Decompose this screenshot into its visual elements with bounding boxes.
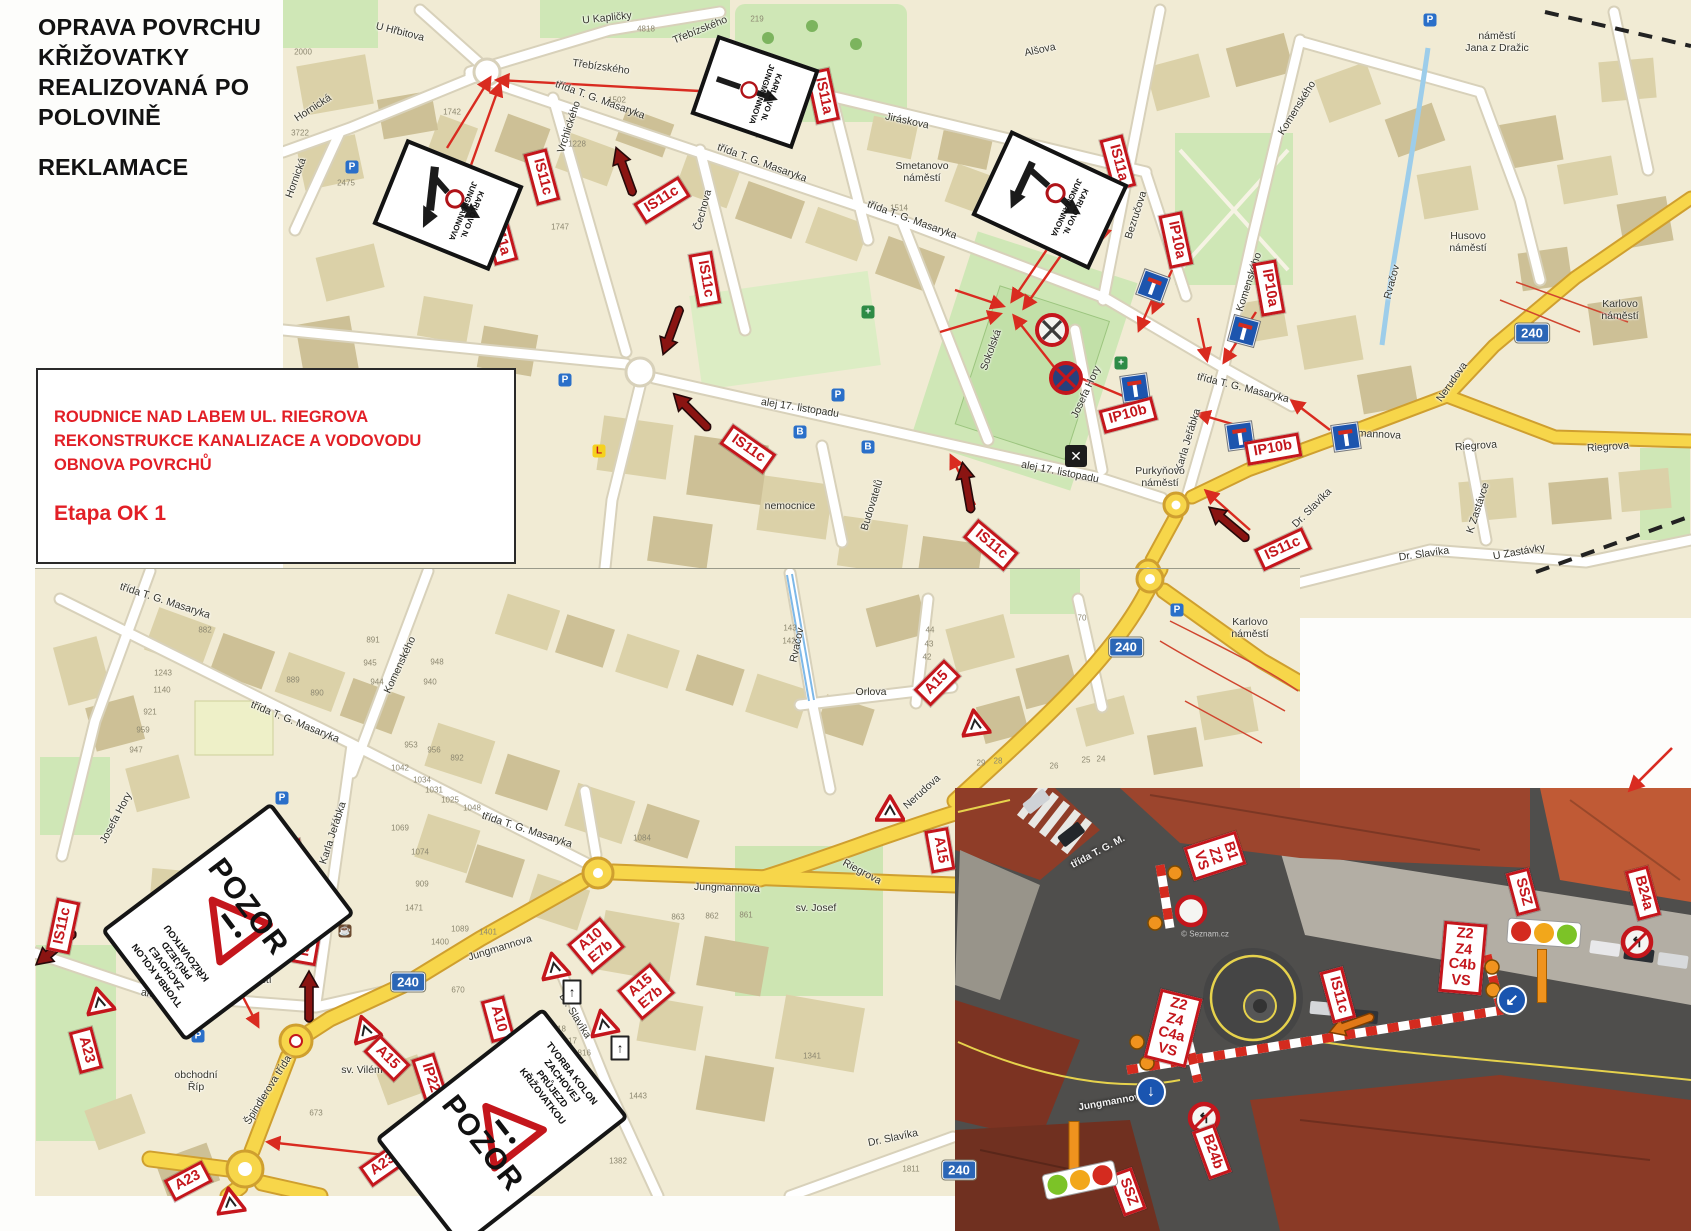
document-page: OPRAVA POVRCHU KŘIŽOVATKY REALIZOVANÁ PO… <box>0 0 1691 1231</box>
street-label: Jungmannova <box>694 881 760 895</box>
keep-direction-sign-icon: ↓ <box>1136 1077 1166 1107</box>
house-number: 948 <box>430 658 443 667</box>
house-number: 861 <box>739 911 752 920</box>
house-number: 944 <box>370 678 383 687</box>
house-number: 889 <box>286 676 299 685</box>
house-number: 1069 <box>391 824 409 833</box>
house-number: 1382 <box>609 1157 627 1166</box>
house-number: 1025 <box>441 796 459 805</box>
house-number: 42 <box>923 653 932 662</box>
house-number: 2475 <box>337 179 355 188</box>
house-number: 25 <box>1082 756 1091 765</box>
cafe-icon: ☕ <box>339 925 352 938</box>
street-label: Karlovo náměstí <box>1231 616 1268 640</box>
street-label: obchodní Říp <box>174 1069 217 1093</box>
house-number: 1502 <box>608 96 626 105</box>
house-number: 909 <box>415 880 428 889</box>
warning-triangle-sign-icon <box>958 706 992 738</box>
page-title: OPRAVA POVRCHU KŘIŽOVATKY REALIZOVANÁ PO… <box>38 12 261 132</box>
house-number: 670 <box>451 986 464 995</box>
house-number: 959 <box>136 726 149 735</box>
house-number: 940 <box>423 678 436 687</box>
house-number: 1031 <box>425 786 443 795</box>
street-label: sv. Vilém <box>341 1064 383 1076</box>
parking-icon: P <box>1171 604 1184 617</box>
house-number: 1400 <box>431 938 449 947</box>
dead-end-sign-icon <box>1331 422 1360 451</box>
house-number: 29 <box>977 759 986 768</box>
aerial-photo-inset <box>955 788 1691 1231</box>
route-number-badge: 240 <box>942 1161 976 1180</box>
house-number: 1747 <box>551 223 569 232</box>
street-label: Husovo náměstí <box>1449 230 1486 254</box>
map-watermark: © Seznam.cz <box>1181 930 1229 939</box>
page-subtitle: REKLAMACE <box>38 154 261 181</box>
house-number: 673 <box>309 1109 322 1118</box>
page-header: OPRAVA POVRCHU KŘIŽOVATKY REALIZOVANÁ PO… <box>38 12 261 181</box>
house-number: 143 <box>783 624 796 633</box>
traffic-light-icon <box>1506 917 1582 948</box>
street-label: náměstí Jana z Dražic <box>1465 30 1529 54</box>
warning-triangle-sign-icon <box>213 1184 247 1216</box>
house-number: 891 <box>366 636 379 645</box>
parking-icon: P <box>1424 14 1437 27</box>
house-number: 862 <box>705 912 718 921</box>
street-label: Karlovo náměstí <box>1601 298 1638 322</box>
house-number: 1443 <box>629 1092 647 1101</box>
house-number: 921 <box>143 708 156 717</box>
house-number: 945 <box>363 659 376 668</box>
house-number: 1811 <box>902 1165 919 1174</box>
house-number: 3722 <box>291 129 309 138</box>
house-number: 1034 <box>413 776 431 785</box>
street-label: Purkyňovo náměstí <box>1135 465 1185 489</box>
bus-stop-icon: B <box>862 441 875 454</box>
e7b-panel-icon: ↑ <box>563 980 582 1005</box>
house-number: 1401 <box>479 928 497 937</box>
house-number: 863 <box>671 913 684 922</box>
page-margin <box>1300 618 1691 790</box>
aerial-photo <box>955 788 1691 1231</box>
signal-pole <box>1537 949 1547 1003</box>
street-label: nemocnice <box>765 500 816 512</box>
e7b-panel-icon: ↑ <box>611 1036 630 1061</box>
parking-icon: P <box>346 161 359 174</box>
store-icon: L <box>593 445 606 458</box>
house-number: 947 <box>129 746 142 755</box>
parking-icon: P <box>276 792 289 805</box>
house-number: 1074 <box>411 848 429 857</box>
house-number: 43 <box>925 640 934 649</box>
house-number: 142 <box>782 637 795 646</box>
pharmacy-icon: + <box>1115 357 1128 370</box>
house-number: 1742 <box>443 108 461 117</box>
keep-direction-sign-icon: ↙ <box>1497 985 1527 1015</box>
house-number: 1341 <box>803 1052 821 1061</box>
parking-icon: P <box>559 374 572 387</box>
house-number: 1471 <box>405 904 423 913</box>
warning-triangle-sign-icon <box>875 794 905 822</box>
house-number: 219 <box>750 15 763 24</box>
project-info-box: ROUDNICE NAD LABEM UL. RIEGROVA REKONSTR… <box>36 368 516 564</box>
house-number: 1042 <box>391 764 409 773</box>
house-number: 1514 <box>890 204 908 213</box>
house-number: 2000 <box>294 48 312 57</box>
signal-pole <box>1069 1121 1080 1173</box>
project-info-text: ROUDNICE NAD LABEM UL. RIEGROVA REKONSTR… <box>54 406 514 478</box>
house-number: 1084 <box>633 834 651 843</box>
route-number-badge: 240 <box>391 973 425 992</box>
house-number: 953 <box>404 741 417 750</box>
house-number: 956 <box>427 746 440 755</box>
house-number: 892 <box>450 754 463 763</box>
house-number: 70 <box>1078 614 1087 623</box>
house-number: 890 <box>310 689 323 698</box>
house-number: 1228 <box>568 140 586 149</box>
house-number: 4818 <box>637 25 655 34</box>
pharmacy-icon: + <box>862 306 875 319</box>
house-number: 24 <box>1097 755 1106 764</box>
street-label: sv. Josef <box>796 902 837 914</box>
house-number: 28 <box>994 757 1003 766</box>
route-number-badge: 240 <box>1109 638 1143 657</box>
house-number: 1048 <box>463 804 481 813</box>
street-label: Smetanovo náměstí <box>895 160 948 184</box>
house-number: 882 <box>198 626 211 635</box>
house-number: 26 <box>1050 762 1059 771</box>
project-stage-label: Etapa OK 1 <box>54 502 514 526</box>
parking-icon: P <box>832 389 845 402</box>
house-number: 44 <box>926 626 935 635</box>
route-number-badge: 240 <box>1515 324 1549 343</box>
street-label: Orlova <box>856 686 887 698</box>
house-number: 1243 <box>154 669 172 678</box>
house-number: 1089 <box>451 925 469 934</box>
windmill-icon: ✕ <box>1065 445 1087 467</box>
traffic-sign-code-label: Z2 Z4 C4b VS <box>1438 921 1487 995</box>
bus-stop-icon: B <box>794 426 807 439</box>
house-number: 1140 <box>153 686 170 695</box>
